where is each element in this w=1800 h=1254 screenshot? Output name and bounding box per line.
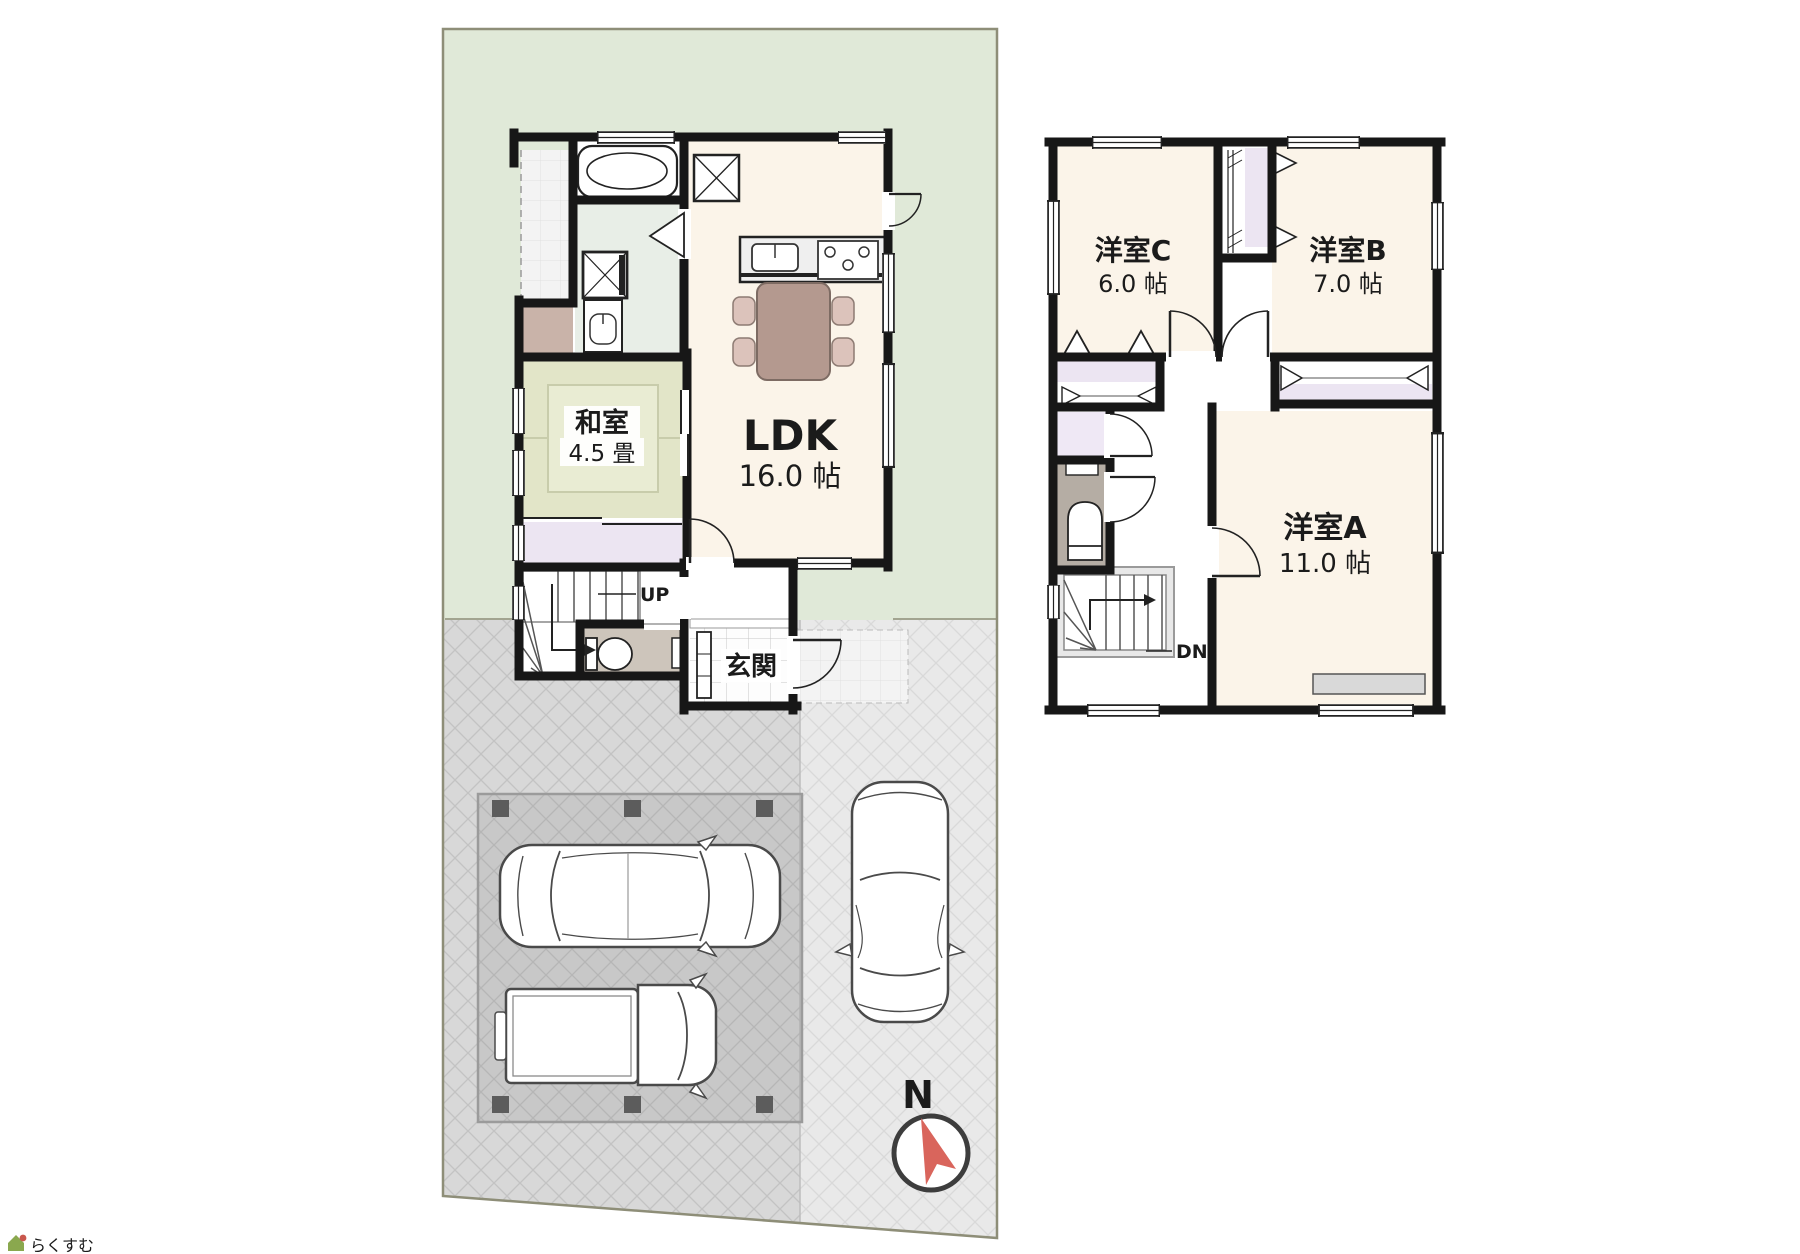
room-a-label: 洋室A — [1283, 511, 1367, 546]
room-a-counter — [1313, 674, 1425, 694]
room-a-size: 11.0 帖 — [1279, 549, 1371, 579]
refrigerator-space-icon — [694, 155, 739, 201]
room-c-label: 洋室C — [1095, 234, 1172, 267]
room-washitsu-size: 4.5 畳 — [569, 441, 636, 467]
room-c-size: 6.0 帖 — [1098, 270, 1168, 298]
second-floor-plan: 洋室C 6.0 帖 洋室B 7.0 帖 洋室A 11.0 帖 DN — [1047, 136, 1444, 717]
genkan-step — [690, 619, 790, 628]
vanity-sink-icon — [584, 300, 622, 352]
room-oshiire-closet — [523, 522, 682, 565]
chair-icon — [733, 338, 755, 366]
room-ldk-size: 16.0 帖 — [739, 459, 842, 493]
chair-icon — [733, 297, 755, 325]
car-truck-icon — [495, 974, 716, 1098]
staircase-2f — [1056, 567, 1174, 657]
stairs-dn-label: DN — [1176, 641, 1208, 663]
stairs-up-label: UP — [640, 584, 669, 606]
chair-icon — [832, 338, 854, 366]
bathtub-icon — [578, 146, 677, 197]
floor-plan-drawing: 和室 4.5 畳 LDK 16.0 帖 玄関 UP — [0, 0, 1800, 1254]
chair-icon — [832, 297, 854, 325]
room-b-label: 洋室B — [1309, 234, 1386, 267]
logo-icon-dot — [20, 1235, 27, 1242]
room-genkan-label: 玄関 — [725, 651, 777, 682]
north-label: N — [902, 1073, 934, 1117]
floor-plan-canvas: 和室 4.5 畳 LDK 16.0 帖 玄関 UP — [0, 0, 1800, 1254]
room-b-size: 7.0 帖 — [1313, 270, 1383, 298]
room-washitsu-label: 和室 — [575, 407, 629, 439]
service-yard-tiles — [521, 150, 573, 300]
car-sedan-icon — [500, 836, 780, 956]
site-logo: らくすむ — [8, 1235, 94, 1254]
washing-machine-icon — [583, 252, 627, 298]
shoe-cabinet-icon — [697, 632, 711, 698]
room-storage-floor — [521, 304, 573, 356]
logo-text: らくすむ — [30, 1236, 94, 1254]
car-vertical-icon — [836, 782, 964, 1022]
room-wash2f-floor — [1057, 412, 1106, 456]
room-ldk-label: LDK — [743, 411, 839, 460]
kitchen-counter — [740, 237, 885, 282]
